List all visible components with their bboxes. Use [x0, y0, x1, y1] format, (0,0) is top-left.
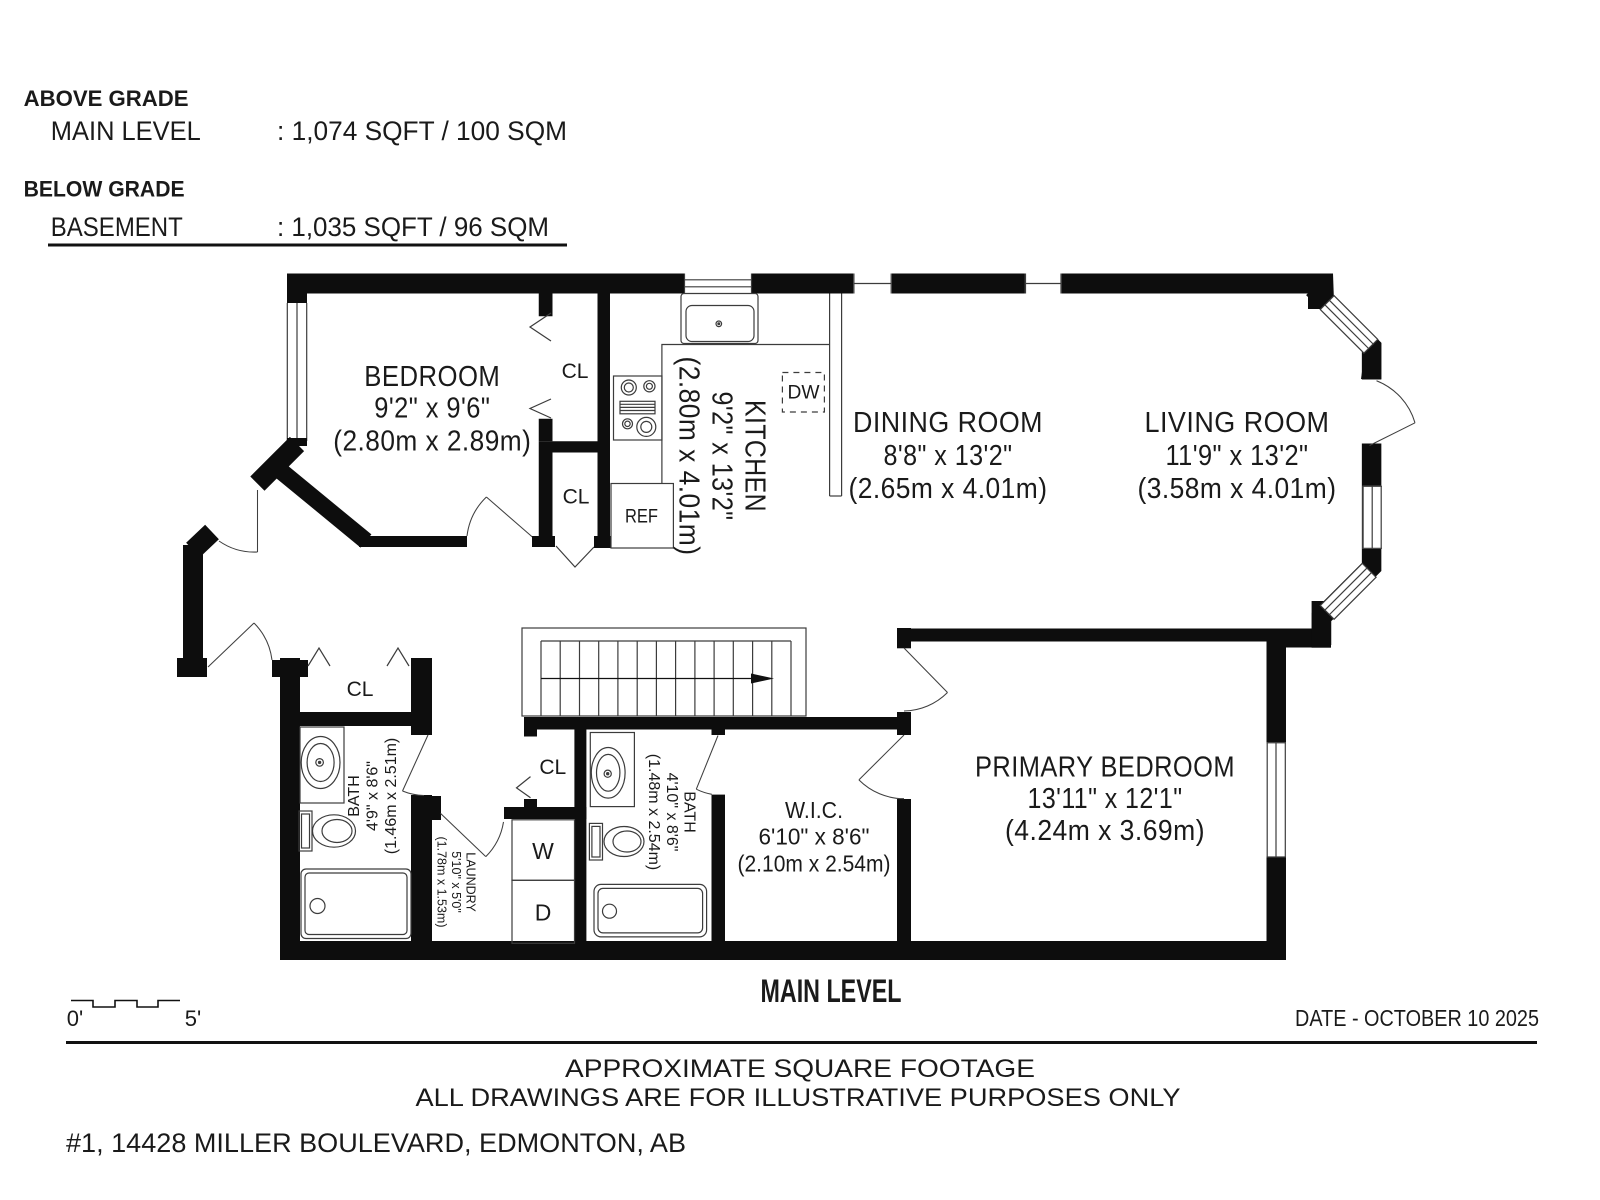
svg-text:(3.58m x 4.01m): (3.58m x 4.01m) — [1138, 473, 1337, 505]
svg-text:BATH: BATH — [681, 791, 698, 832]
svg-text:CL: CL — [563, 486, 590, 509]
svg-text:ABOVE GRADE: ABOVE GRADE — [24, 86, 189, 111]
svg-text:5'10" x 5'0": 5'10" x 5'0" — [449, 851, 463, 913]
svg-text:8'8" x 13'2": 8'8" x 13'2" — [884, 440, 1013, 472]
svg-text:(1.48m x 2.54m): (1.48m x 2.54m) — [645, 754, 662, 870]
svg-text:REF: REF — [625, 507, 658, 528]
svg-text:CL: CL — [347, 678, 374, 701]
svg-text:9'2" x 13'2": 9'2" x 13'2" — [706, 392, 738, 521]
svg-text:LAUNDRY: LAUNDRY — [464, 852, 478, 912]
svg-text:CL: CL — [562, 360, 589, 383]
svg-text:0': 0' — [67, 1006, 83, 1031]
svg-text:(1.46m x 2.51m): (1.46m x 2.51m) — [383, 738, 400, 854]
svg-text:MAIN LEVEL: MAIN LEVEL — [761, 973, 902, 1009]
svg-text:KITCHEN: KITCHEN — [739, 400, 771, 512]
svg-text:DW: DW — [788, 383, 820, 404]
svg-text:BEDROOM: BEDROOM — [364, 361, 500, 393]
svg-text:ALL DRAWINGS ARE FOR ILLUSTRAT: ALL DRAWINGS ARE FOR ILLUSTRATIVE PURPOS… — [416, 1084, 1181, 1112]
svg-text:BATH: BATH — [346, 775, 363, 816]
svg-text:(2.80m x 2.89m): (2.80m x 2.89m) — [333, 426, 531, 458]
svg-text:W.I.C.: W.I.C. — [785, 797, 843, 823]
svg-text:: 1,074 SQFT / 100 SQM: : 1,074 SQFT / 100 SQM — [277, 116, 567, 146]
svg-text:APPROXIMATE SQUARE FOOTAGE: APPROXIMATE SQUARE FOOTAGE — [565, 1055, 1035, 1083]
svg-text:: 1,035 SQFT / 96 SQM: : 1,035 SQFT / 96 SQM — [277, 212, 549, 242]
svg-text:(4.24m x 3.69m): (4.24m x 3.69m) — [1005, 815, 1205, 847]
svg-text:CL: CL — [539, 756, 566, 779]
svg-text:9'2" x 9'6": 9'2" x 9'6" — [374, 393, 490, 425]
svg-text:(2.80m x 4.01m): (2.80m x 4.01m) — [673, 357, 705, 556]
svg-text:(1.78m x 1.53m): (1.78m x 1.53m) — [435, 836, 449, 927]
svg-text:DATE - OCTOBER 10 2025: DATE - OCTOBER 10 2025 — [1295, 1005, 1539, 1031]
svg-text:13'11" x 12'1": 13'11" x 12'1" — [1028, 783, 1183, 815]
svg-text:11'9" x 13'2": 11'9" x 13'2" — [1166, 440, 1309, 472]
svg-text:5': 5' — [185, 1006, 201, 1031]
svg-text:(2.65m x 4.01m): (2.65m x 4.01m) — [849, 473, 1048, 505]
svg-text:MAIN LEVEL: MAIN LEVEL — [51, 116, 201, 146]
svg-text:#1, 14428 MILLER BOULEVARD, ED: #1, 14428 MILLER BOULEVARD, EDMONTON, AB — [66, 1128, 686, 1158]
svg-text:D: D — [535, 900, 552, 926]
svg-text:DINING ROOM: DINING ROOM — [853, 407, 1043, 439]
svg-text:LIVING ROOM: LIVING ROOM — [1145, 407, 1330, 439]
svg-text:PRIMARY BEDROOM: PRIMARY BEDROOM — [975, 752, 1235, 784]
svg-text:BELOW GRADE: BELOW GRADE — [24, 177, 185, 202]
svg-text:4'9" x 8'6": 4'9" x 8'6" — [365, 761, 382, 831]
svg-text:W: W — [532, 838, 554, 864]
svg-text:6'10" x 8'6": 6'10" x 8'6" — [759, 824, 870, 850]
svg-text:BASEMENT: BASEMENT — [51, 212, 183, 242]
svg-text:4'10" x 8'6": 4'10" x 8'6" — [663, 773, 680, 852]
svg-text:(2.10m x 2.54m): (2.10m x 2.54m) — [738, 851, 891, 877]
